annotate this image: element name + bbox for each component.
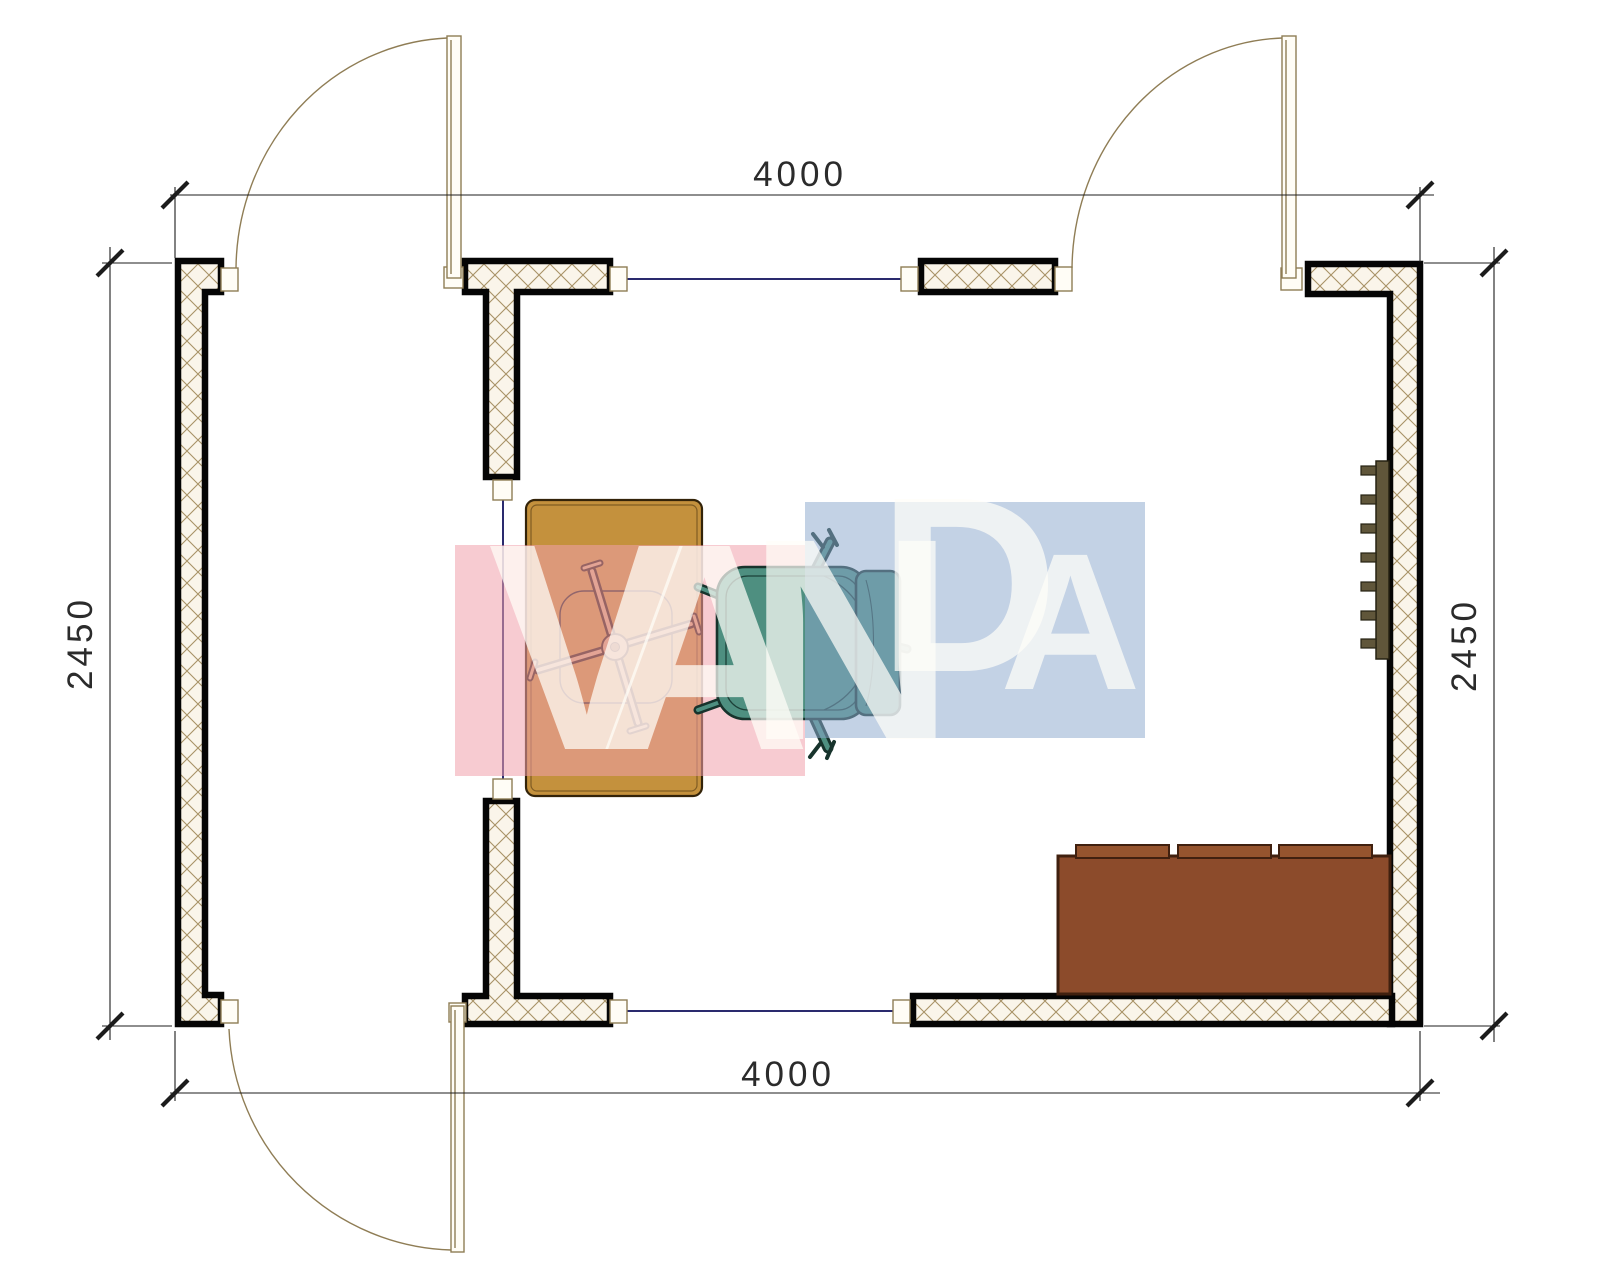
- watermark-letter-a2: A: [1000, 525, 1141, 720]
- floor-plan-canvas: 4000 4000 2450: [0, 0, 1600, 1280]
